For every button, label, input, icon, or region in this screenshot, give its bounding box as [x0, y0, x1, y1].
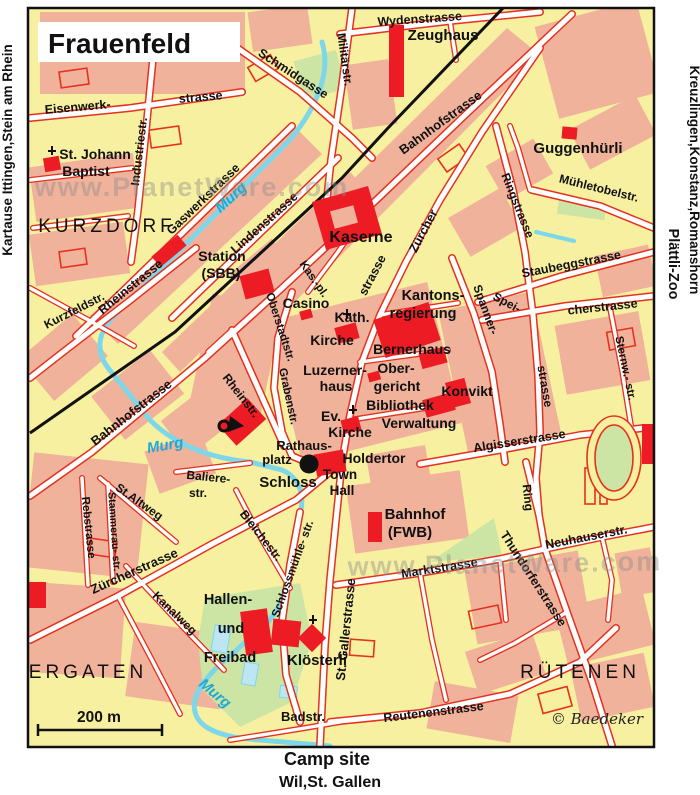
- poi-bibliothek: Bibliothek: [366, 397, 434, 413]
- watermark-1: www.PlanetWare.com: [34, 172, 350, 202]
- poi-schloss: Schloss: [259, 474, 317, 491]
- poi-ev-kirche-2: Kirche: [328, 424, 372, 440]
- copyright-baedeker: © Baedeker: [551, 710, 644, 728]
- poi-kath-kirche-1: Kath.: [335, 309, 370, 325]
- poi-kantonsregierung-1: Kantons-: [402, 288, 465, 304]
- edge-right-destinations: Kreuzlingen,Konstanz,Romanshorn: [687, 66, 700, 295]
- poi-town-hall-2: Hall: [330, 483, 355, 498]
- poi-obergericht-1: Ober-: [377, 360, 415, 376]
- poi-freibad-3: Freibad: [204, 650, 256, 666]
- scale-label: 200 m: [77, 709, 121, 726]
- poi-holdertor: Holdertor: [343, 450, 407, 466]
- guggenhuerli-building: [562, 126, 578, 139]
- zeughaus-building: [389, 25, 404, 97]
- poi-station-sbb: Station: [198, 248, 245, 264]
- poi-rathausplatz-1: Rathaus-: [276, 438, 332, 453]
- street-balierestr-2: str.: [189, 486, 207, 500]
- poi-kantonsregierung-2: regierung: [390, 306, 457, 322]
- edge-left-destinations: Kartause Ittingen,Stein am Rhein: [0, 44, 15, 256]
- poi-verwaltung: Verwaltung: [382, 415, 457, 431]
- poi-st-johann: St. Johann: [59, 146, 131, 162]
- baedeker-city-map-frauenfeld: { "map": { "title": "Frauenfeld", "scale…: [0, 0, 700, 795]
- kloesterli-building: [271, 619, 302, 648]
- street-ring: Ring: [520, 484, 537, 512]
- poi-station-sbb-2: (SBB): [202, 265, 241, 281]
- poi-freibad-1: Hallen-: [204, 592, 253, 608]
- poi-town-hall-1: Town: [323, 467, 357, 482]
- poi-luzernerhaus-1: Luzerner-: [303, 362, 367, 378]
- map-title: Frauenfeld: [48, 28, 191, 59]
- edge-right-zoo: Plättli-Zoo: [665, 229, 681, 300]
- svg-text:i: i: [307, 456, 311, 472]
- stadium: [587, 416, 641, 500]
- bahnhof-fwb-building: [368, 512, 382, 542]
- poi-ev-kirche-1: Ev.: [321, 408, 341, 424]
- street-badstr: Badstr.: [281, 709, 325, 724]
- watermark-2: www.PlanetWare.com: [346, 546, 662, 582]
- info-icon: i: [300, 455, 319, 474]
- poi-konvikt: Konvikt: [441, 383, 493, 399]
- area-ergaten: ERGATEN: [29, 662, 147, 683]
- destination-south: Wil,St. Gallen: [279, 774, 381, 791]
- poi-obergericht-2: gericht: [374, 378, 421, 394]
- poi-luzernerhaus-2: haus: [320, 378, 353, 394]
- poi-freibad-2: und: [218, 621, 245, 637]
- map-canvas: i 200 m Frauenfeld Kartause Ittingen,Ste…: [0, 0, 700, 795]
- poi-guggenhuerli: Guggenhürli: [533, 140, 622, 157]
- camp-site-label: Camp site: [284, 749, 370, 769]
- area-ruetenen: RÜTENEN: [520, 662, 640, 683]
- poi-bahnhof-fwb-1: Bahnhof: [385, 506, 447, 523]
- poi-bernerhaus: Bernerhaus: [373, 341, 451, 357]
- poi-rathausplatz-2: platz: [262, 452, 292, 467]
- area-kurzdorf: KURZDORF: [38, 216, 176, 237]
- poi-kath-kirche-2: Kirche: [310, 332, 354, 348]
- poi-kaserne: Kaserne: [329, 229, 392, 246]
- poi-zeughaus: Zeughaus: [408, 27, 479, 44]
- poi-bahnhof-fwb-2: (FWB): [388, 524, 432, 541]
- poi-casino: Casino: [283, 295, 330, 311]
